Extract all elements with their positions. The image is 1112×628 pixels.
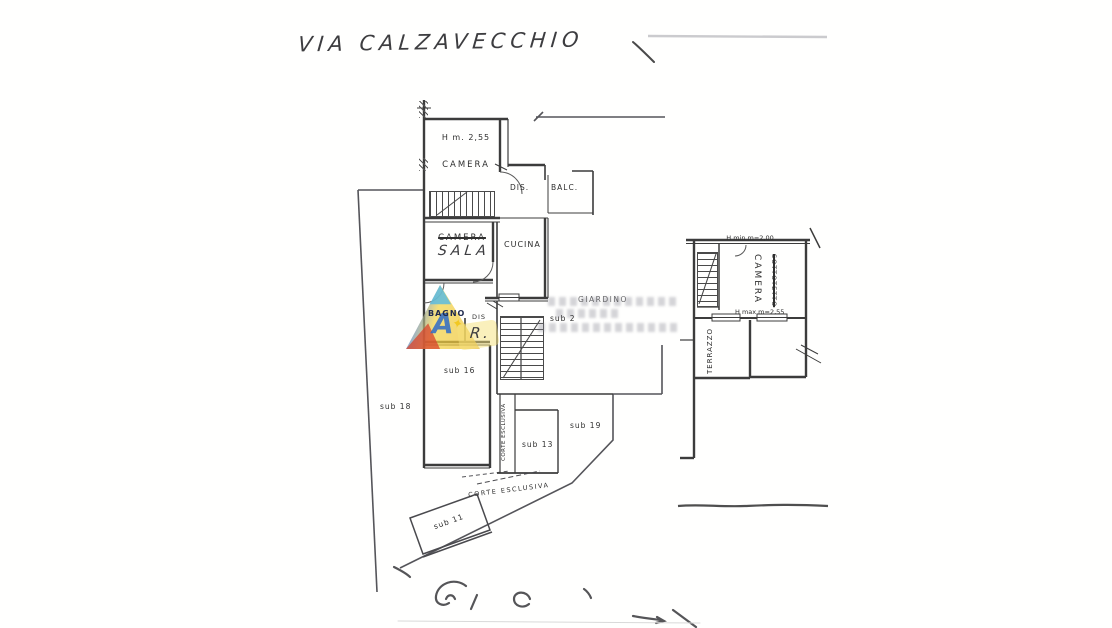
- label-giardino: GIARDINO: [578, 295, 628, 304]
- label-camera-height: H m. 2,55: [437, 133, 495, 142]
- label-h-min: H min m=2,00: [712, 234, 788, 242]
- label-sottotetto-struck: SOTTOTETTO: [770, 254, 778, 307]
- street-name-handwritten: VIA CALZAVECCHIO: [297, 27, 585, 56]
- label-h-max: H max m=2,55: [735, 308, 784, 316]
- label-balc: BALC.: [551, 183, 578, 192]
- label-camera: CAMERA: [437, 160, 495, 170]
- label-camera-struck: CAMERA: [433, 233, 491, 243]
- staircase-annex: [697, 252, 718, 307]
- label-bagno: BAGNO: [428, 309, 465, 318]
- label-terrazzo: TERRAZZO: [706, 328, 714, 374]
- label-cucina: CUCINA: [504, 240, 541, 249]
- wall-hatch: [419, 158, 428, 171]
- label-corte-esclusiva-strip: CORTE ESCLUSIVA: [501, 403, 507, 461]
- floor-plan-scan: A ✦ VIA CALZAVECCHIO H m. 2,55 CAMERA DI…: [0, 0, 1112, 628]
- label-dis-upper: DIS.: [510, 183, 529, 192]
- staircase-main-upper: [429, 191, 495, 217]
- label-sub19: sub 19: [570, 421, 601, 430]
- scan-edge-lines: [633, 36, 827, 62]
- label-sub16: sub 16: [444, 366, 475, 375]
- label-r-handwritten: R.: [469, 324, 492, 342]
- label-sala-handwritten: SALA: [437, 243, 491, 259]
- label-sub2: sub 2: [550, 314, 576, 323]
- label-camera-attic: CAMERA: [752, 254, 762, 304]
- label-sub13: sub 13: [522, 440, 553, 449]
- watermark-ghost-text: [538, 323, 678, 332]
- label-dis-lower: DIS: [472, 313, 486, 321]
- label-sub18: sub 18: [380, 402, 411, 411]
- wall-hatch: [419, 101, 428, 118]
- signature-strokes: [394, 567, 700, 627]
